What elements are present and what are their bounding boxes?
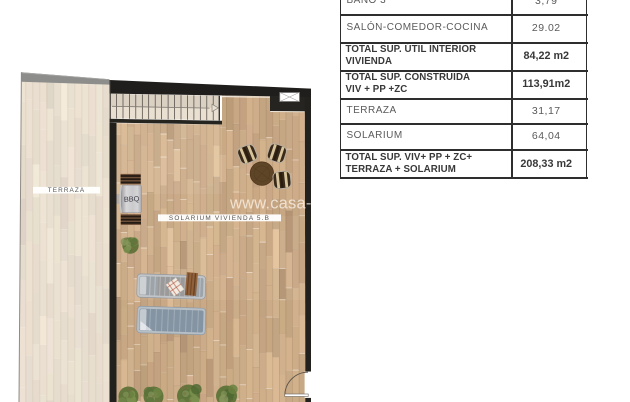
svg-text:SOLARIUM VIVIENDA 5.B: SOLARIUM VIVIENDA 5.B [169, 215, 270, 222]
svg-text:TERRAZA: TERRAZA [48, 187, 86, 194]
svg-text:BBQ: BBQ [124, 194, 140, 204]
svg-text:www.casa-: www.casa- [229, 195, 312, 213]
